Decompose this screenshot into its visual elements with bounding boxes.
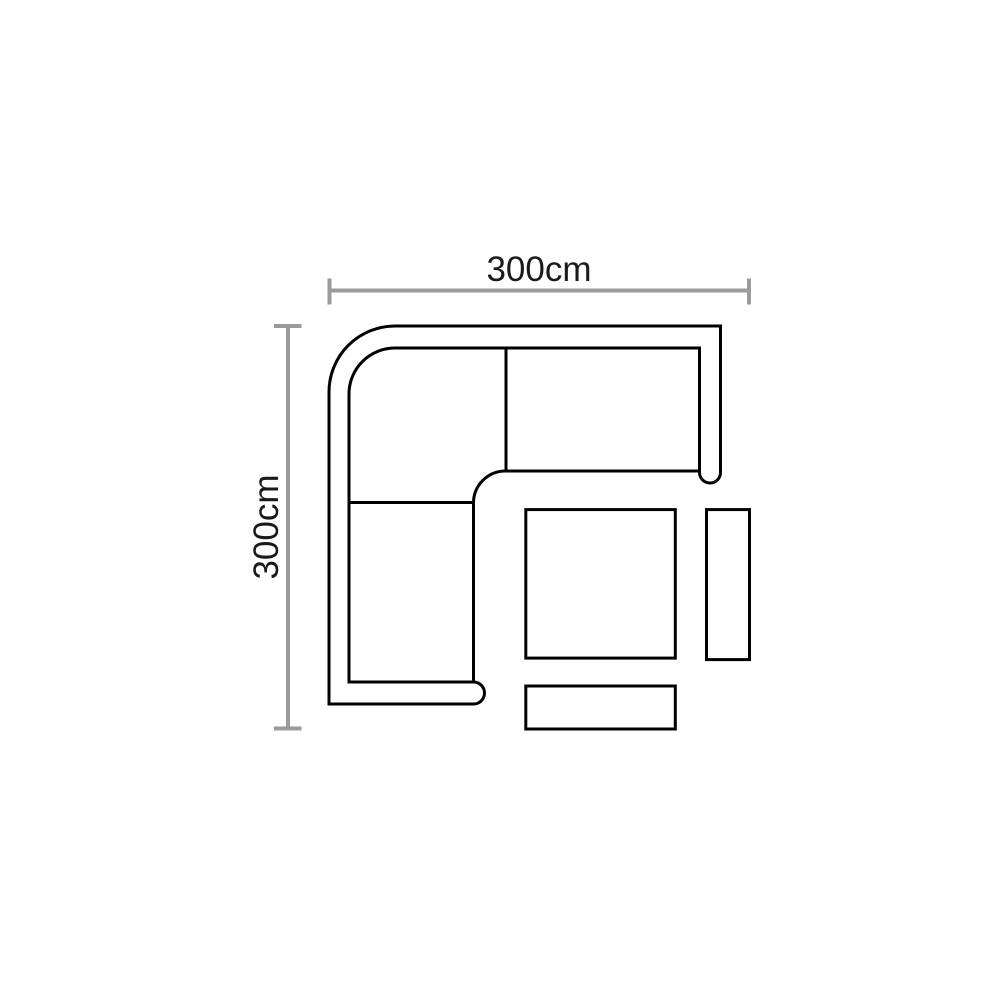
svg-text:300cm: 300cm [486,250,591,289]
svg-text:300cm: 300cm [247,474,286,579]
